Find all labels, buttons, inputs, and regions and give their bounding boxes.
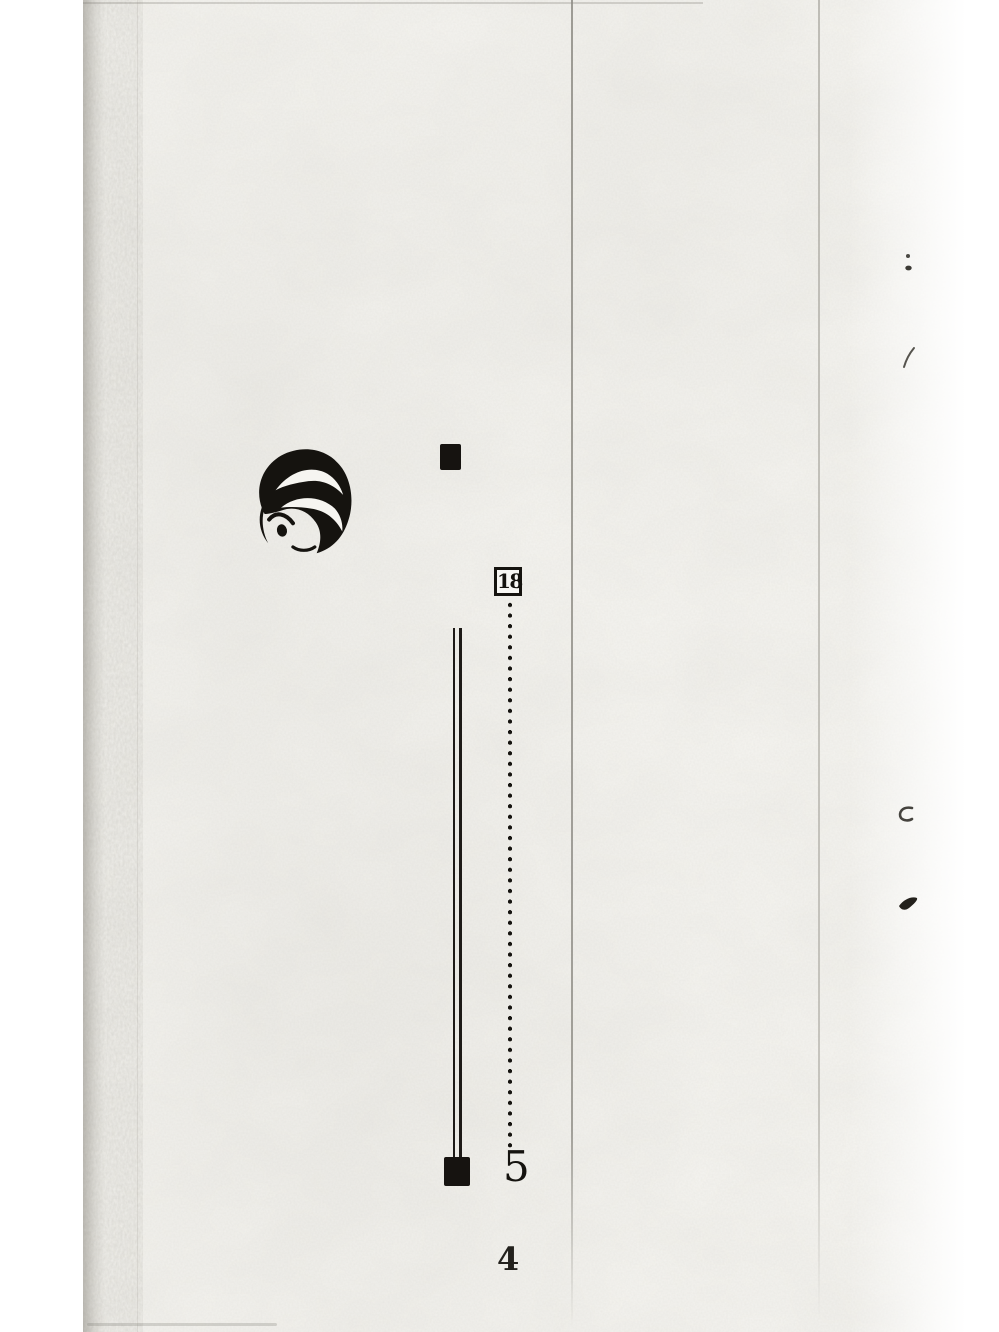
logo-smile <box>293 547 315 550</box>
page-number: 4 <box>497 1243 519 1275</box>
page-top-edge-line <box>83 2 703 4</box>
page-left-edge-shadow <box>83 0 105 1332</box>
screenshot-canvas: 18 5 4 <box>0 0 999 1332</box>
ink-mark-check <box>900 345 918 371</box>
right-vertical-rule-line <box>818 0 820 1320</box>
bottom-edge-smudge <box>87 1323 277 1326</box>
dotted-line-value-label: 5 <box>503 1146 530 1188</box>
ink-mark-colon <box>903 250 915 276</box>
logo-eye <box>276 523 288 537</box>
bottom-square-marker <box>444 1157 470 1186</box>
numbered-node-box: 18 <box>494 567 522 596</box>
swirl-face-logo <box>250 443 355 565</box>
ink-mark-blob <box>897 894 921 916</box>
top-square-marker <box>440 444 461 470</box>
numbered-node-label: 18 <box>497 569 522 593</box>
vertical-double-line <box>453 628 462 1157</box>
scanned-page: 18 5 4 <box>83 0 999 1332</box>
page-right-fade <box>849 0 999 1332</box>
logo-eyebrow <box>269 514 293 523</box>
vertical-dotted-line <box>507 600 513 1152</box>
paper-crease-line <box>137 0 138 1332</box>
center-vertical-rule-line <box>571 0 573 1328</box>
ink-mark-curl <box>895 804 917 824</box>
